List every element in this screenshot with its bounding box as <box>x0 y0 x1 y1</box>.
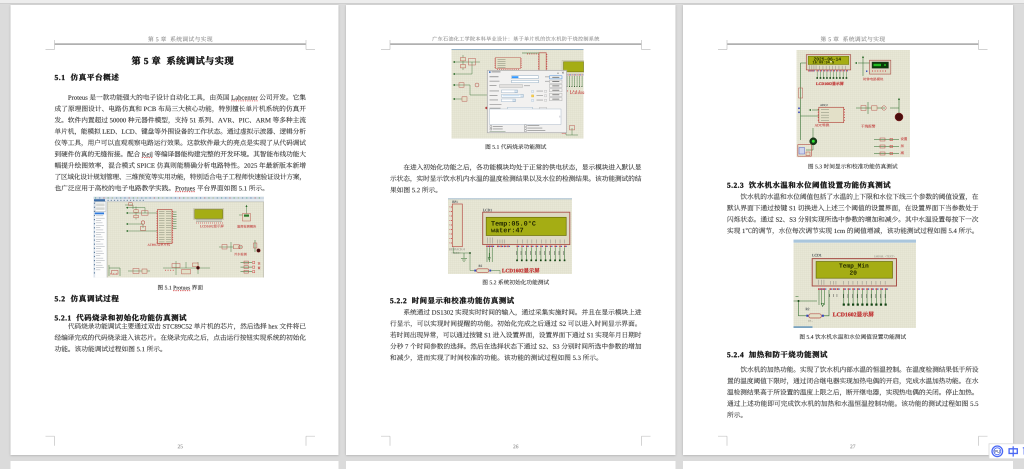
svg-text:PU: PU <box>994 449 1000 454</box>
